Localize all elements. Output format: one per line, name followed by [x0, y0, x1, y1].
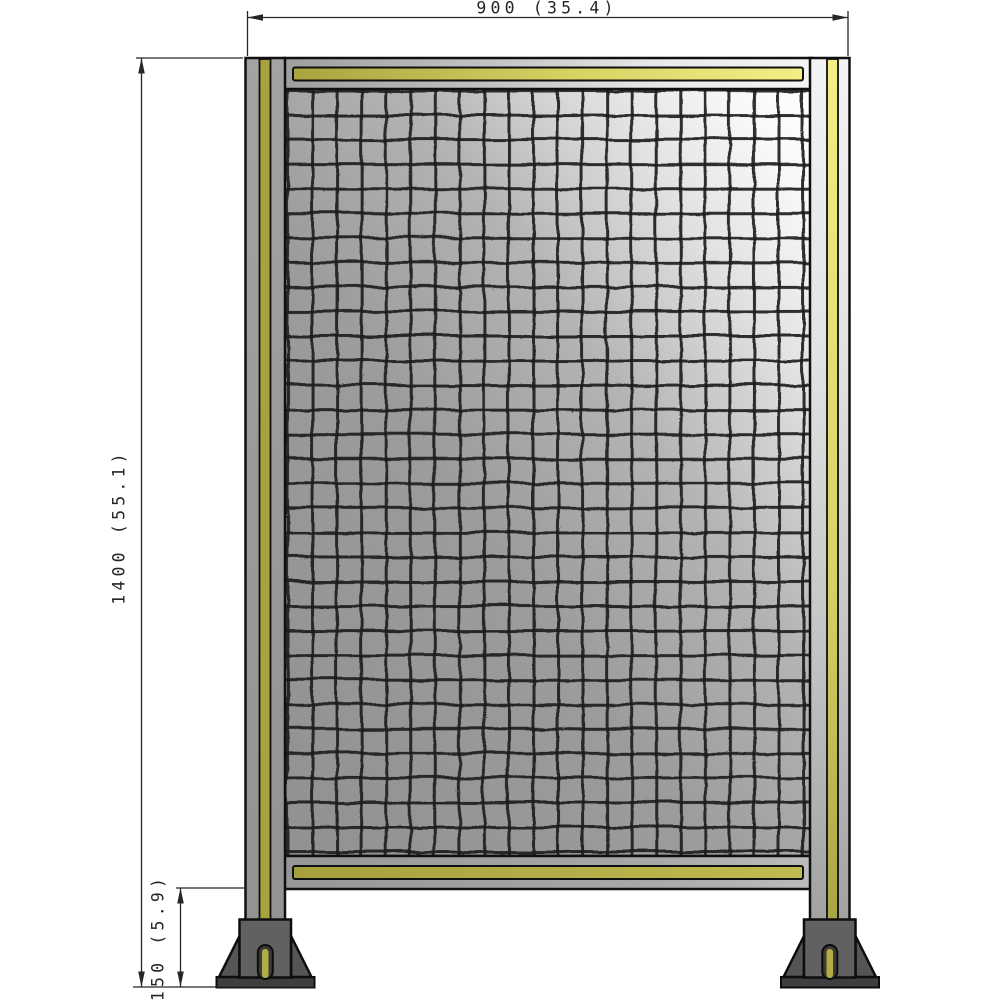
mesh-wire-grid [280, 83, 816, 861]
left-post-slot-stripe [260, 59, 271, 921]
foot-gusset-left [219, 936, 240, 977]
drawing-canvas: 900 (35.4) 1400 (55.1) 150 (5.9) [0, 0, 1000, 1000]
arrow-down-icon [177, 972, 184, 988]
fence-technical-drawing: 900 (35.4) 1400 (55.1) 150 (5.9) [0, 0, 1000, 1000]
foot-slot-stripe [262, 949, 269, 978]
bottom-rail [284, 856, 812, 889]
arrow-up-icon [138, 58, 145, 74]
arrow-up-icon [177, 888, 184, 904]
dimension-width: 900 (35.4) [248, 0, 849, 56]
left-post [246, 58, 286, 922]
foot-height-dimension-label: 150 (5.9) [149, 874, 168, 1000]
mesh-wires [280, 83, 816, 861]
right-post [810, 58, 850, 922]
fence-panel [217, 58, 880, 988]
left-foot [217, 920, 315, 988]
arrow-down-icon [138, 972, 145, 988]
arrow-left-icon [248, 14, 264, 21]
top-rail-slot-stripe [293, 68, 803, 81]
arrow-right-icon [833, 14, 849, 21]
right-post-slot-stripe [827, 59, 838, 921]
bottom-rail-slot-stripe [293, 866, 803, 879]
height-dimension-label: 1400 (55.1) [110, 449, 129, 604]
top-rail [284, 58, 812, 89]
right-foot [781, 920, 879, 988]
mesh-infill [280, 83, 816, 861]
foot-gusset-right [291, 936, 312, 977]
width-dimension-label: 900 (35.4) [476, 0, 617, 18]
